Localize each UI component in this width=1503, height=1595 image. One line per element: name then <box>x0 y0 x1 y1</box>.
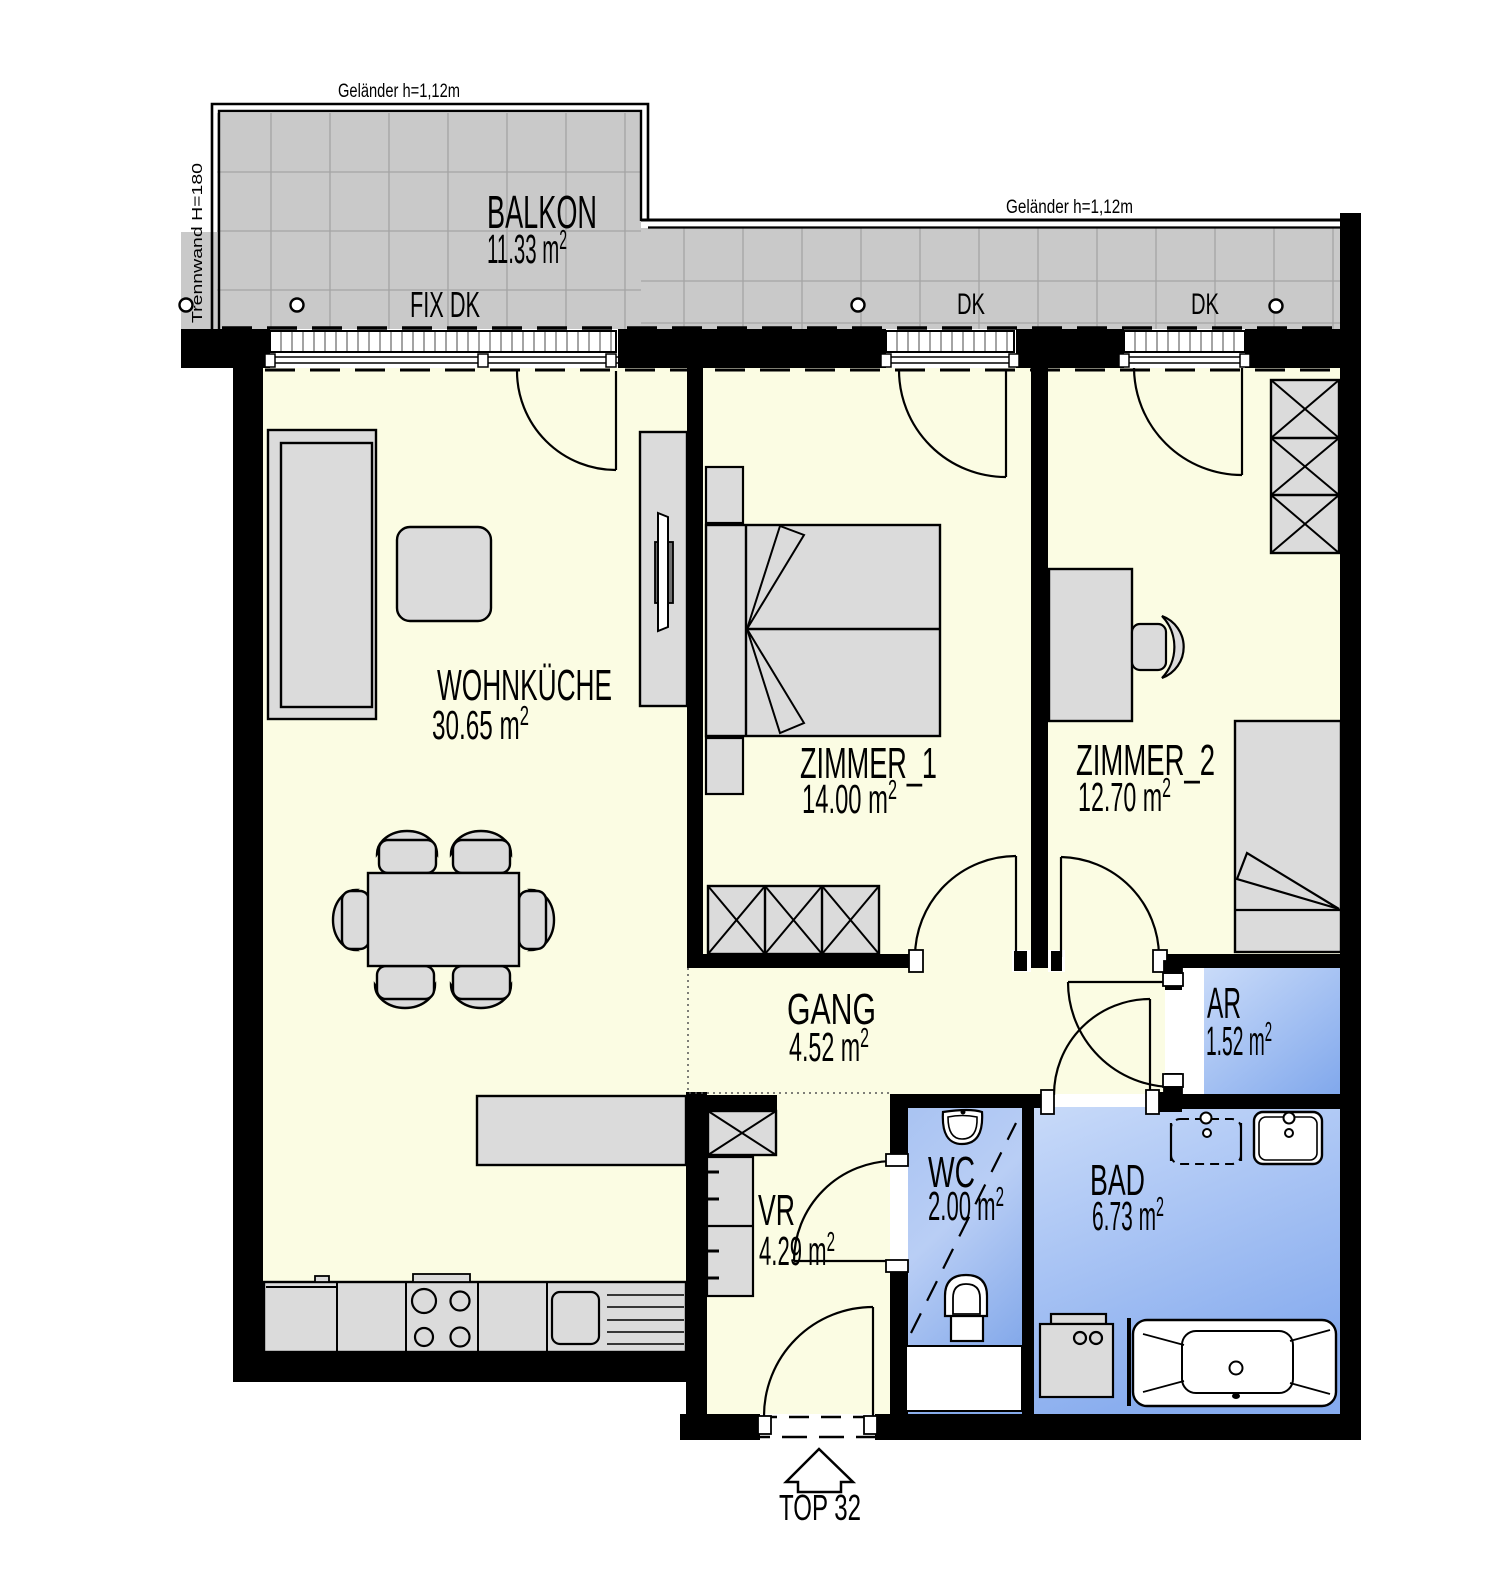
svg-text:2.00 m2: 2.00 m2 <box>928 1181 1004 1229</box>
svg-text:Geländer h=1,12m: Geländer h=1,12m <box>338 81 460 102</box>
svg-text:TOP 32: TOP 32 <box>779 1487 861 1528</box>
svg-text:1.52 m2: 1.52 m2 <box>1206 1016 1272 1064</box>
svg-text:30.65 m2: 30.65 m2 <box>432 700 529 748</box>
svg-text:DK: DK <box>1191 288 1219 321</box>
svg-text:4.29 m2: 4.29 m2 <box>759 1226 835 1274</box>
svg-text:14.00 m2: 14.00 m2 <box>802 774 897 822</box>
svg-text:Trennwand H=180: Trennwand H=180 <box>189 163 206 323</box>
svg-text:4.52 m2: 4.52 m2 <box>789 1022 869 1070</box>
svg-text:Geländer h=1,12m: Geländer h=1,12m <box>1006 197 1133 218</box>
svg-text:6.73 m2: 6.73 m2 <box>1092 1191 1164 1239</box>
svg-text:11.33 m2: 11.33 m2 <box>487 224 567 272</box>
svg-text:DK: DK <box>957 288 985 321</box>
svg-text:FIX DK: FIX DK <box>410 284 480 325</box>
svg-text:12.70 m2: 12.70 m2 <box>1078 772 1171 820</box>
